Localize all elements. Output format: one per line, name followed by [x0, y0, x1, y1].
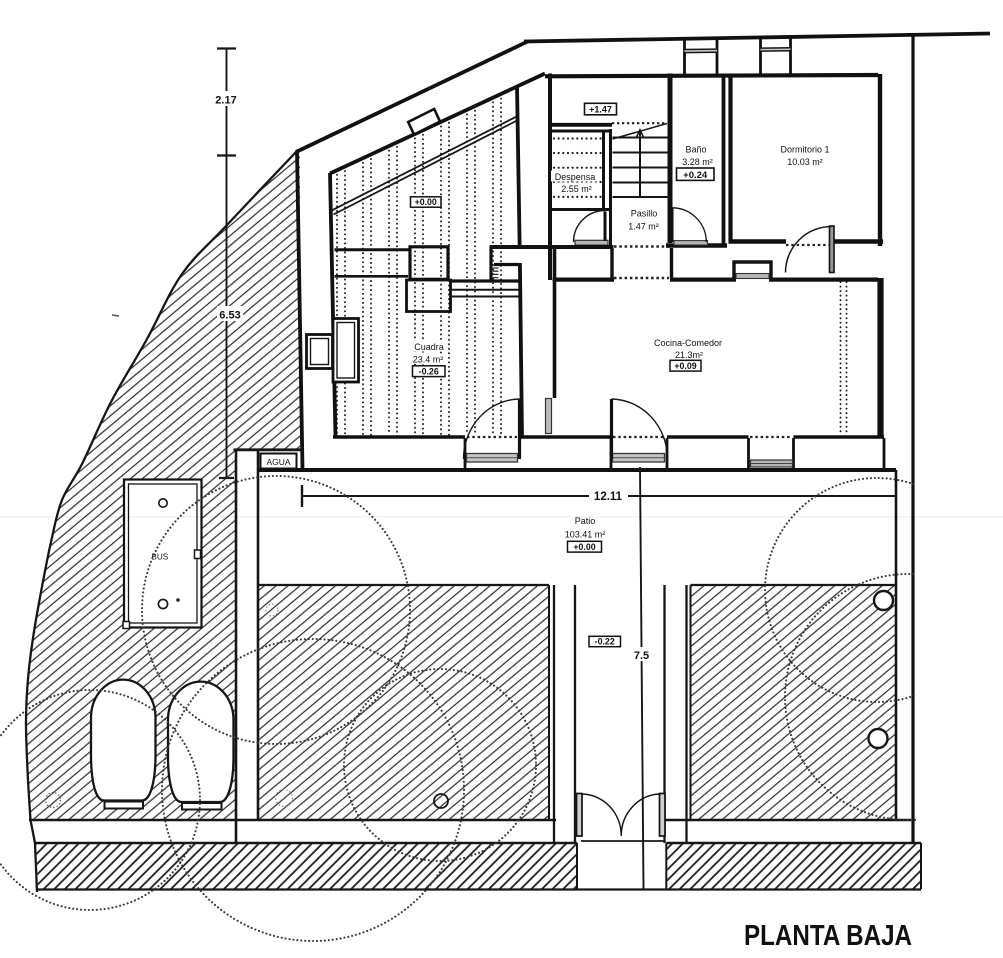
svg-text:12.11: 12.11 — [594, 491, 623, 503]
svg-text:+0.24: +0.24 — [683, 170, 708, 181]
svg-text:-0.22: -0.22 — [595, 637, 615, 647]
svg-text:6.53: 6.53 — [219, 310, 240, 322]
svg-text:10.03 m²: 10.03 m² — [787, 157, 823, 167]
svg-text:Baño: Baño — [685, 145, 706, 155]
svg-text:2.55 m²: 2.55 m² — [561, 184, 592, 194]
svg-text:Cuadra: Cuadra — [414, 342, 444, 352]
svg-text:PLANTA BAJA: PLANTA BAJA — [744, 920, 912, 952]
svg-text:+0.00: +0.00 — [415, 197, 437, 207]
svg-text:7.5: 7.5 — [634, 650, 649, 662]
svg-text:Pasillo: Pasillo — [631, 209, 658, 219]
svg-text:21.3m²: 21.3m² — [675, 350, 703, 360]
svg-text:1.47 m²: 1.47 m² — [628, 222, 659, 232]
svg-text:3.28 m²: 3.28 m² — [682, 157, 713, 167]
svg-text:103.41 m²: 103.41 m² — [565, 529, 606, 539]
svg-text:+0.09: +0.09 — [674, 361, 696, 371]
svg-text:Despensa: Despensa — [555, 172, 596, 182]
svg-text:Dormitorio 1: Dormitorio 1 — [780, 145, 829, 155]
svg-text:Cocina-Comedor: Cocina-Comedor — [654, 338, 722, 348]
svg-text:+0.00: +0.00 — [573, 542, 595, 552]
svg-text:-0.26: -0.26 — [419, 366, 439, 376]
svg-text:23.4 m²: 23.4 m² — [413, 355, 444, 365]
svg-text:AGUA: AGUA — [266, 457, 290, 467]
svg-text:+1.47: +1.47 — [589, 104, 612, 114]
svg-text:2.17: 2.17 — [215, 95, 236, 107]
